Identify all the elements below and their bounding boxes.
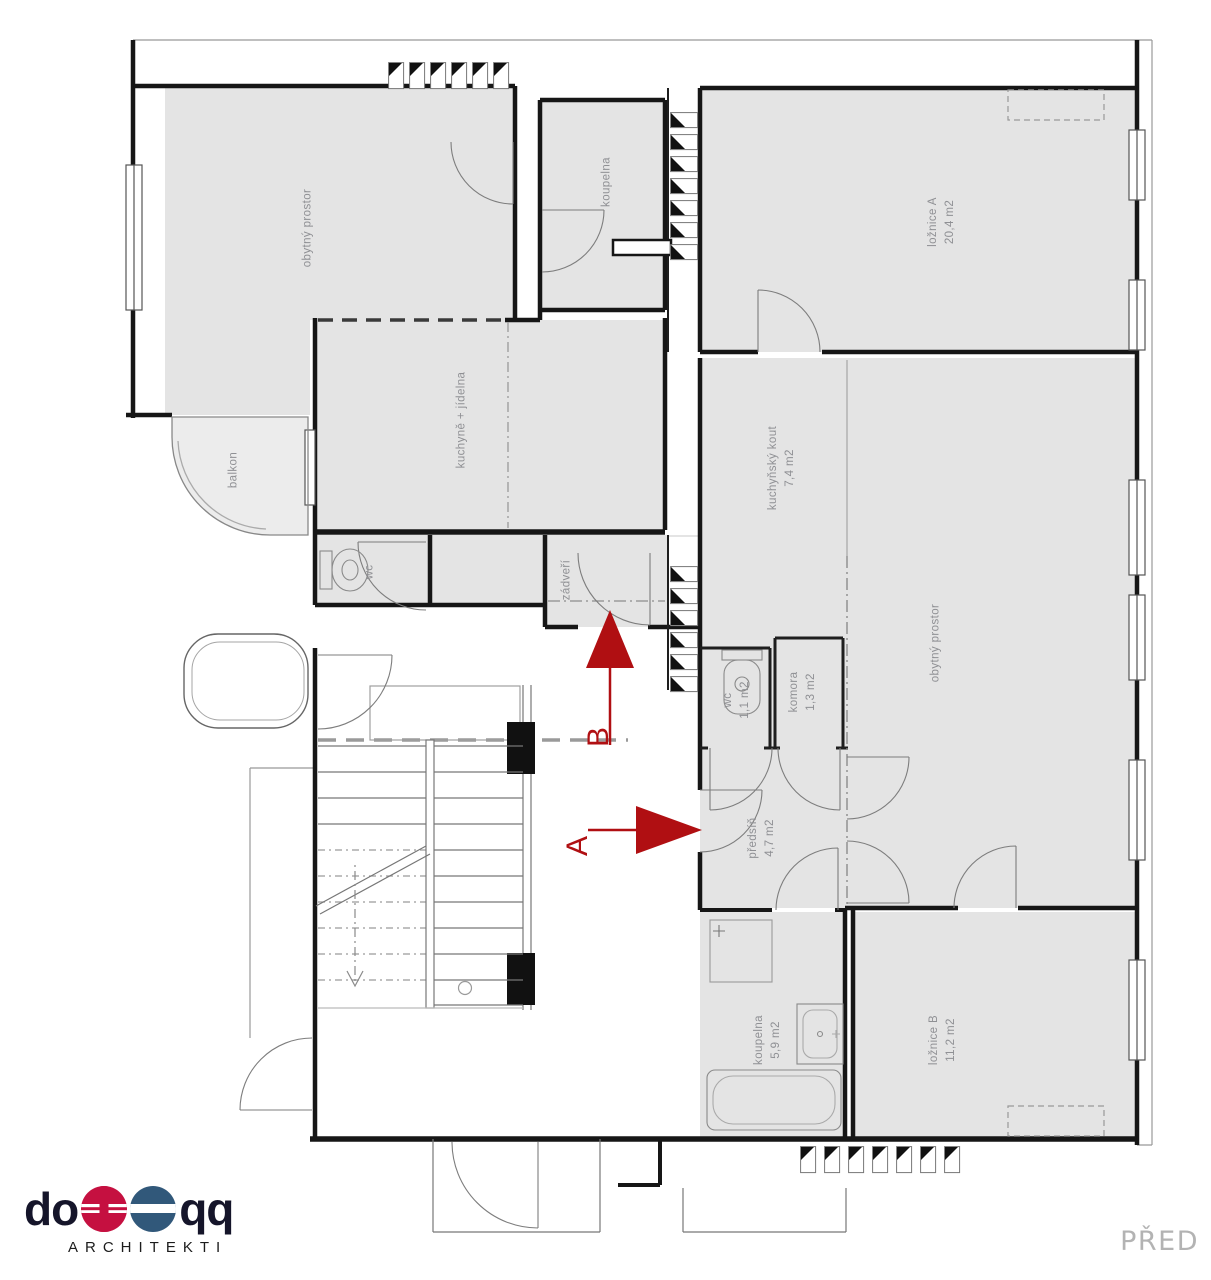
room-label-living-top-left: obytný prostor [300, 189, 317, 267]
logo-row: do qq [24, 1186, 233, 1232]
radiator-icon [613, 240, 671, 255]
window-balcony-door [305, 430, 315, 505]
room-label-wc-top: wc [362, 565, 379, 580]
door-building-entrance [452, 1142, 538, 1228]
room-label-living-right: obytný prostor [928, 604, 945, 682]
exterior-element [184, 634, 308, 728]
pillar-top [507, 722, 535, 774]
window-right-3 [1129, 480, 1145, 575]
room-label-bedroom-b: ložnice B 11,2 m2 [926, 1015, 960, 1065]
pillar-bottom [507, 953, 535, 1005]
section-arrow-b [586, 610, 634, 745]
stair-stringer [426, 740, 434, 1008]
window-right-2 [1129, 280, 1145, 350]
window-right-6 [1129, 960, 1145, 1060]
door-exterior-left [240, 1038, 312, 1110]
room-label-hall: předsíň 4,7 m2 [745, 817, 779, 858]
room-label-balcony: balkon [226, 452, 243, 488]
window-left [126, 165, 142, 310]
room-label-bedroom-a: ložnice A 20,4 m2 [925, 197, 959, 247]
architect-logo: do qq ARCHITEKTI [24, 1186, 233, 1256]
room-fill-bedroom-b [853, 912, 1137, 1138]
room-fill-kitchen [315, 320, 665, 530]
window-right-5 [1129, 760, 1145, 860]
door-landing [318, 655, 392, 729]
room-label-bath-b: koupelna 5,9 m2 [751, 1015, 785, 1065]
stage-label: PŘED [1120, 1226, 1199, 1257]
stair-break-line [316, 846, 430, 914]
room-label-kitchenette: kuchyňský kout 7,4 m2 [765, 426, 799, 510]
logo-text-qq: qq [179, 1186, 233, 1232]
section-arrow-a [588, 806, 702, 854]
room-fill-bedroom-a [700, 88, 1137, 352]
section-label-a: A [561, 836, 595, 856]
room-label-komora: komora 1,3 m2 [786, 672, 820, 713]
section-label-b: B [582, 727, 616, 747]
room-label-wc-small: wc 1,1 m2 [720, 681, 754, 719]
room-label-entry: zádveří [559, 560, 576, 601]
logo-text-do: do [24, 1186, 78, 1232]
window-right-1 [1129, 130, 1145, 200]
room-label-kitchen: kuchyně + jídelna [454, 372, 471, 469]
logo-minus-circle-icon [130, 1186, 176, 1232]
window-right-4 [1129, 595, 1145, 680]
room-label-bath-top: koupelna [599, 157, 616, 207]
logo-plus-circle-icon [81, 1186, 127, 1232]
logo-subtitle: ARCHITEKTI [24, 1239, 233, 1256]
